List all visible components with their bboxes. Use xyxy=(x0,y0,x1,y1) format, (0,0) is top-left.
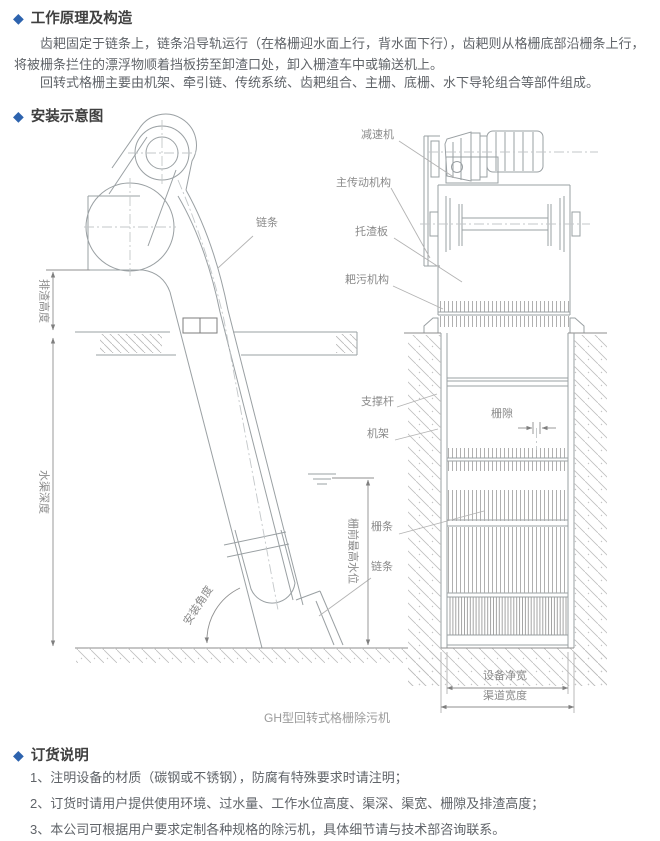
ordering-item: 2、订货时请用户提供使用环境、过水量、工作水位高度、渠深、渠宽、栅隙及排渣高度； xyxy=(30,793,650,812)
section-title-working-principle: ◆ 工作原理及构造 xyxy=(13,7,132,28)
label-slag-plate: 托渣板 xyxy=(355,227,388,238)
installation-title: 安装示意图 xyxy=(31,105,104,126)
label-max-water-level: 栅前最高水位 xyxy=(347,518,358,584)
label-chain-bottom: 链条 xyxy=(371,562,393,573)
diamond-icon: ◆ xyxy=(13,11,24,25)
principle-paragraph-1: 齿耙固定于链条上，链条沿导轨运行（在格栅迎水面上行，背水面下行），齿耙则从格栅底… xyxy=(14,33,650,75)
label-main-drive: 主传动机构 xyxy=(336,178,391,189)
principle-paragraph-2: 回转式格栅主要由机架、牵引链、传统系统、齿耙组合、主栅、底栅、水下导轮组合等部件… xyxy=(14,72,650,93)
label-channel-width: 渠道宽度 xyxy=(483,691,527,702)
ordering-item: 1、注明设备的材质（碳钢或不锈钢），防腐有特殊要求时请注明； xyxy=(30,767,650,786)
section-title-installation: ◆ 安装示意图 xyxy=(13,105,103,126)
label-channel-depth: 水渠深度 xyxy=(38,470,49,514)
section-title-ordering: ◆ 订货说明 xyxy=(13,744,89,765)
ordering-item: 3、本公司可根据用户要求定制各种规格的除污机，具体细节请与技术部咨询联系。 xyxy=(30,819,650,838)
label-support-rod: 支撑杆 xyxy=(361,397,394,408)
label-equipment-net-width: 设备净宽 xyxy=(483,671,527,682)
label-rake-mechanism: 耙污机构 xyxy=(345,275,389,286)
page: ◆ 工作原理及构造 齿耙固定于链条上，链条沿导轨运行（在格栅迎水面上行，背水面下… xyxy=(0,0,660,841)
label-grid-bar: 栅条 xyxy=(371,522,393,533)
label-install-angle: 安装角度 xyxy=(182,585,215,628)
diagram-caption: GH型回转式格栅除污机 xyxy=(264,709,390,726)
label-discharge-height: 排渣高度 xyxy=(38,279,49,323)
ordering-title: 订货说明 xyxy=(31,744,89,765)
label-frame: 机架 xyxy=(367,429,389,440)
diamond-icon: ◆ xyxy=(13,748,24,762)
working-principle-title: 工作原理及构造 xyxy=(31,7,133,28)
diamond-icon: ◆ xyxy=(13,109,24,123)
label-chain-top: 链条 xyxy=(256,218,278,229)
label-grid-gap: 栅隙 xyxy=(491,409,513,420)
label-reducer: 减速机 xyxy=(361,130,394,141)
